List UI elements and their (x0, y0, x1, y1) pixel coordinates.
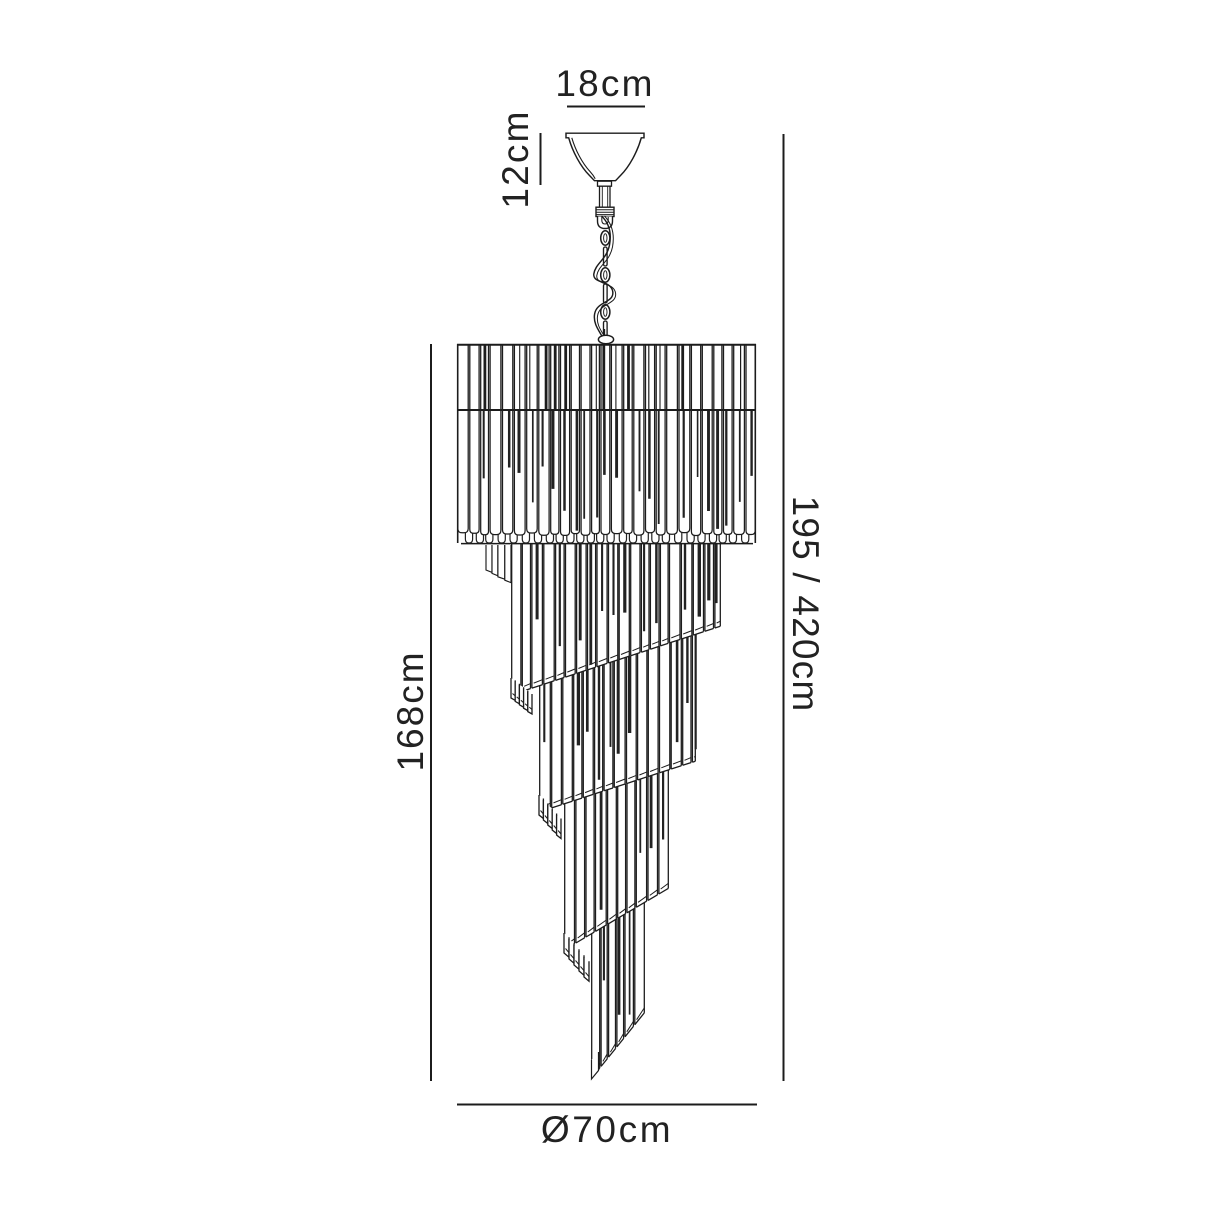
svg-text:12cm: 12cm (495, 109, 536, 208)
svg-text:18cm: 18cm (555, 63, 654, 104)
svg-text:168cm: 168cm (390, 650, 431, 771)
svg-text:195 / 420cm: 195 / 420cm (785, 496, 826, 713)
svg-text:Ø70cm: Ø70cm (541, 1109, 673, 1150)
